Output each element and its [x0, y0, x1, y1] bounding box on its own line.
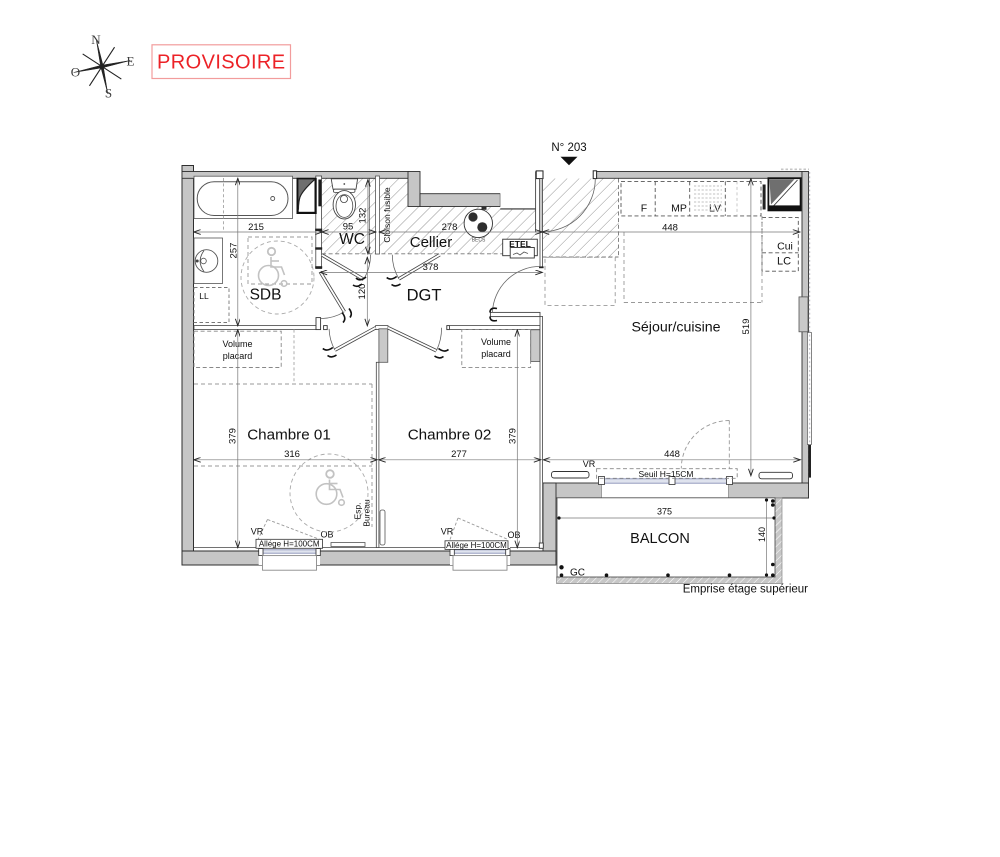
- svg-text:Bureau: Bureau: [362, 499, 372, 527]
- svg-text:257: 257: [229, 243, 240, 259]
- svg-text:132: 132: [358, 208, 369, 224]
- svg-text:S: S: [105, 86, 112, 101]
- svg-text:LL: LL: [199, 291, 209, 301]
- svg-text:Séjour/cuisine: Séjour/cuisine: [631, 320, 720, 336]
- svg-text:BECS: BECS: [472, 238, 486, 244]
- svg-text:120: 120: [357, 284, 368, 300]
- svg-text:Cloison fusible: Cloison fusible: [382, 187, 392, 243]
- svg-text:448: 448: [662, 223, 678, 234]
- svg-text:519: 519: [741, 319, 752, 335]
- svg-text:316: 316: [284, 449, 300, 460]
- svg-text:379: 379: [508, 428, 519, 444]
- svg-text:OB: OB: [507, 530, 520, 540]
- svg-text:375: 375: [657, 507, 672, 517]
- svg-text:VR: VR: [441, 527, 454, 537]
- svg-text:MP: MP: [671, 203, 687, 215]
- svg-text:448: 448: [664, 449, 680, 460]
- svg-text:N: N: [91, 32, 101, 47]
- svg-text:Allége H=100CM: Allége H=100CM: [259, 540, 320, 549]
- svg-text:Chambre 02: Chambre 02: [408, 427, 492, 444]
- svg-text:Seuil H=15CM: Seuil H=15CM: [638, 469, 693, 479]
- svg-text:GC: GC: [570, 568, 585, 579]
- svg-text:Chambre 01: Chambre 01: [247, 427, 331, 444]
- svg-text:278: 278: [442, 222, 458, 233]
- svg-text:F: F: [641, 203, 647, 215]
- svg-text:LC: LC: [777, 256, 791, 268]
- svg-text:140: 140: [757, 527, 767, 542]
- svg-text:PROVISOIRE: PROVISOIRE: [157, 52, 285, 74]
- svg-text:Cui: Cui: [777, 241, 793, 253]
- svg-text:BALCON: BALCON: [630, 531, 690, 547]
- svg-text:OB: OB: [320, 530, 333, 540]
- svg-text:Emprise étage supérieur: Emprise étage supérieur: [683, 584, 808, 596]
- svg-text:WC: WC: [339, 231, 365, 248]
- svg-text:O: O: [71, 65, 80, 80]
- svg-text:E: E: [127, 54, 135, 69]
- svg-text:VR: VR: [583, 459, 596, 469]
- svg-text:ETEL: ETEL: [509, 239, 531, 249]
- svg-text:LV: LV: [709, 203, 721, 215]
- svg-text:N° 203: N° 203: [551, 142, 586, 154]
- svg-text:215: 215: [248, 222, 264, 233]
- svg-text:Cellier: Cellier: [410, 234, 453, 251]
- svg-text:379: 379: [228, 428, 239, 444]
- svg-text:Volume: Volume: [481, 337, 511, 347]
- svg-text:placard: placard: [481, 349, 511, 359]
- svg-text:Allége H=100CM: Allége H=100CM: [446, 541, 507, 550]
- svg-text:SDB: SDB: [250, 287, 282, 304]
- svg-text:VR: VR: [251, 527, 264, 537]
- svg-text:DGT: DGT: [407, 287, 442, 305]
- svg-text:277: 277: [451, 449, 467, 460]
- svg-text:378: 378: [423, 262, 439, 273]
